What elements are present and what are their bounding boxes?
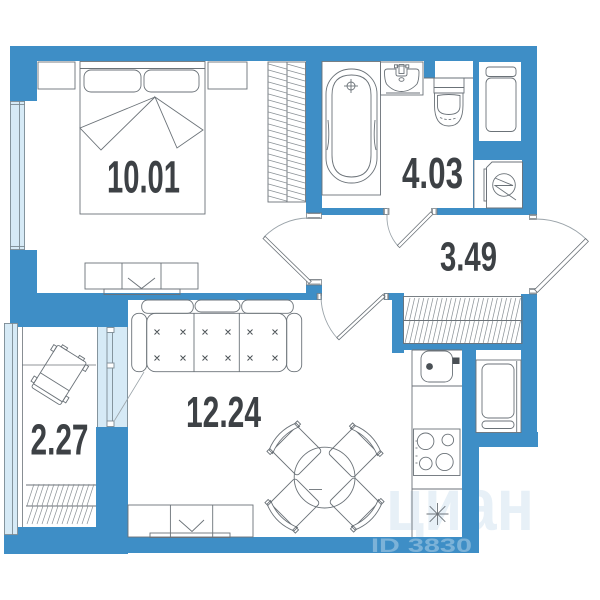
svg-text:3.49: 3.49 — [440, 234, 497, 280]
svg-text:2.27: 2.27 — [31, 416, 89, 465]
svg-text:12.24: 12.24 — [186, 388, 261, 437]
svg-text:10.01: 10.01 — [107, 152, 180, 203]
svg-text:ID 3830: ID 3830 — [371, 536, 472, 557]
svg-text:4.03: 4.03 — [402, 149, 463, 198]
